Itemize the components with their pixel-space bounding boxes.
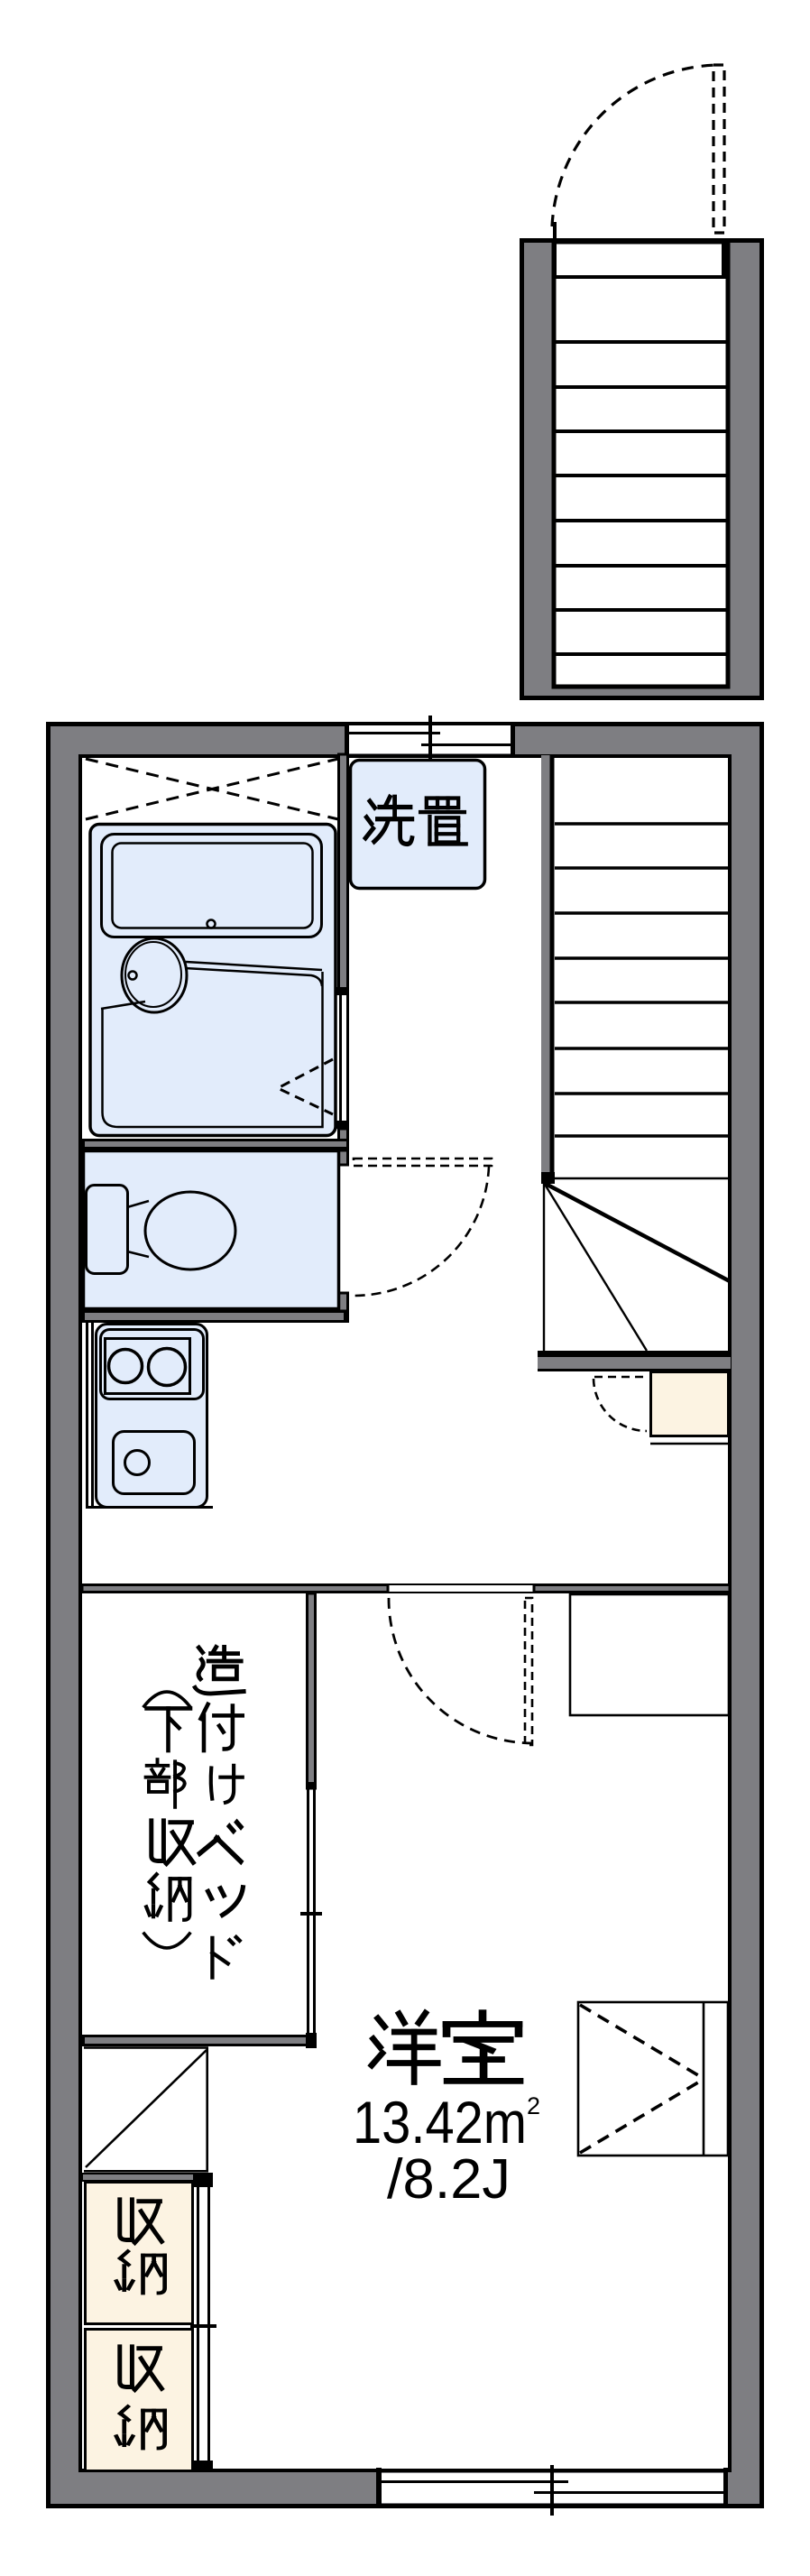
svg-text:/8.2J: /8.2J bbox=[387, 2148, 511, 2211]
svg-text:13.42m: 13.42m bbox=[353, 2089, 527, 2156]
svg-text:2: 2 bbox=[527, 2092, 540, 2119]
